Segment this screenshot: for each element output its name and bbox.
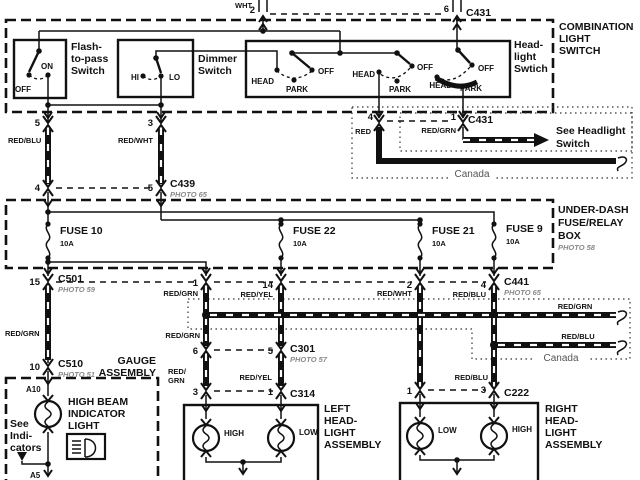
wire-color-label: RED/YEL xyxy=(240,290,273,299)
box-title: COMBINATION xyxy=(559,21,633,33)
connector-label: C510 xyxy=(58,358,83,370)
bulb-label: LOW xyxy=(299,428,318,437)
fuse-label: FUSE 9 xyxy=(506,223,543,235)
wire-continuation-icon xyxy=(617,157,626,171)
arrowhead-icon xyxy=(534,133,549,147)
contact-label: OFF xyxy=(417,63,433,72)
wire-color-label: RED/WHT xyxy=(377,289,412,298)
fuse-21-icon xyxy=(417,221,422,260)
wire-color-label: RED/GRN xyxy=(421,126,456,135)
pin-label: 6 xyxy=(193,346,198,357)
fuse-22-icon xyxy=(278,221,283,260)
pin-label: 5 xyxy=(268,346,274,357)
contact-label: HEAD xyxy=(251,77,274,86)
wire-color-label: RED/BLU xyxy=(453,290,486,299)
connector-label: C222 xyxy=(504,387,529,399)
bulb-label: LOW xyxy=(438,426,457,435)
pin-label: 3 xyxy=(481,385,486,396)
photo-ref: PHOTO 51 xyxy=(58,370,95,379)
photo-ref: PHOTO 65 xyxy=(504,288,542,297)
photo-ref: PHOTO 58 xyxy=(558,243,596,252)
pin-label: 2 xyxy=(250,5,255,16)
contact-label: LO xyxy=(169,73,180,82)
low-beam-bulb-icon xyxy=(268,419,294,457)
see-indicators-note: Indi- xyxy=(10,430,33,442)
contact-label: OFF xyxy=(318,67,334,76)
fuse-label: FUSE 22 xyxy=(293,225,336,237)
fuse-10-icon xyxy=(45,221,50,260)
switch-title: to-pass xyxy=(71,53,109,65)
pin-label: 1 xyxy=(193,278,199,289)
wire-color-label: RED/BLU xyxy=(455,373,488,382)
wire-color-label: RED/ xyxy=(168,367,187,376)
contact-label: PARK xyxy=(460,84,482,93)
bulb-label: HIGH xyxy=(512,425,532,434)
wire-color-label: RED/BLU xyxy=(561,332,594,341)
contact-label: PARK xyxy=(286,85,308,94)
contact-label: ON xyxy=(41,62,53,71)
pin-label: 1 xyxy=(268,387,274,398)
box-title: HEAD- xyxy=(545,415,579,427)
canada-label: Canada xyxy=(543,353,578,364)
box-title: SWITCH xyxy=(559,45,600,57)
photo-ref: PHOTO 57 xyxy=(290,355,328,364)
fuse-rating: 10A xyxy=(432,239,446,248)
lower-connectors xyxy=(201,342,499,399)
box-title: LIGHT xyxy=(545,427,577,439)
high-beam-bulb-icon xyxy=(193,419,219,457)
wire-color-label: RED/GRN xyxy=(558,302,593,311)
contact-label: HEAD xyxy=(429,81,452,90)
switch-title: Dimmer xyxy=(198,53,237,65)
pin-label: 5 xyxy=(35,118,41,129)
component-label: INDICATOR xyxy=(68,408,126,420)
pin-label: 3 xyxy=(148,118,153,129)
fuse-rating: 10A xyxy=(60,239,74,248)
high-beam-icon xyxy=(67,434,105,459)
component-label: LIGHT xyxy=(68,420,100,432)
pin-label: 4 xyxy=(368,112,374,123)
pin-label: 6 xyxy=(444,4,449,15)
box-title: ASSEMBLY xyxy=(324,439,381,451)
fuse-9-icon xyxy=(491,221,496,260)
pin-label: 1 xyxy=(451,112,457,123)
bulb-label: HIGH xyxy=(224,429,244,438)
box-title: LIGHT xyxy=(324,427,356,439)
pin-label: A10 xyxy=(26,385,41,394)
wire-color-label: RED xyxy=(355,127,371,136)
connector-label: C314 xyxy=(290,388,315,400)
pin-label: 10 xyxy=(29,362,40,373)
wire-color-label: RED/WHT xyxy=(118,136,153,145)
pin-label: 1 xyxy=(407,386,413,397)
see-indicators-note: See xyxy=(10,418,29,430)
fuse-label: FUSE 10 xyxy=(60,225,103,237)
switch-title: Swtich xyxy=(514,63,548,75)
fuse-rating: 10A xyxy=(506,237,520,246)
box-title: BOX xyxy=(558,230,581,242)
wire-color-label: RED/GRN xyxy=(5,329,40,338)
wire-color-label: GRN xyxy=(168,376,185,385)
box-title: FUSE/RELAY xyxy=(558,217,624,229)
contact-label: OFF xyxy=(15,85,31,94)
switch-title: Flash- xyxy=(71,41,102,53)
under-dash-wiring xyxy=(44,209,498,276)
wire-color-label: RED/GRN xyxy=(163,289,198,298)
pin-label: 4 xyxy=(35,183,41,194)
box-title: ASSEMBLY xyxy=(545,439,602,451)
switch-title: light xyxy=(514,51,537,63)
box-title: ASSEMBLY xyxy=(99,367,156,379)
contact-label: HEAD xyxy=(352,70,375,79)
box-title: LIGHT xyxy=(559,33,591,45)
canada-label: Canada xyxy=(454,169,489,180)
pin-label: A5 xyxy=(30,471,41,480)
box-title: RIGHT xyxy=(545,403,578,415)
box-title: HEAD- xyxy=(324,415,358,427)
box-title: GAUGE xyxy=(117,355,156,367)
dimmer-switch-box xyxy=(118,40,193,97)
wire-continuation-icon xyxy=(617,311,626,325)
connector-label: C431 xyxy=(466,7,491,19)
wire-color-label: RED/YEL xyxy=(239,373,272,382)
contact-label: PARK xyxy=(389,85,411,94)
box-title: UNDER-DASH xyxy=(558,204,629,216)
contact-label: HI xyxy=(131,73,139,82)
fuse-label: FUSE 21 xyxy=(432,225,475,237)
pin-label: 3 xyxy=(193,387,198,398)
low-beam-bulb-icon xyxy=(407,417,433,455)
connector-label: C301 xyxy=(290,343,315,355)
component-label: HIGH BEAM xyxy=(68,396,128,408)
left-headlight-assembly-box xyxy=(184,405,318,480)
connector-label: C439 xyxy=(170,178,195,190)
pin-label: 15 xyxy=(29,277,40,288)
photo-ref: PHOTO 59 xyxy=(58,285,96,294)
connector-label: C441 xyxy=(504,276,529,288)
switch-title: Switch xyxy=(71,65,105,77)
switch-title: Switch xyxy=(198,65,232,77)
arrow-icon xyxy=(259,24,461,30)
wiring-diagram: WHT 2 6 C431 COMBINATION LIGHT SWITCH Fl… xyxy=(0,0,640,480)
pin-label: 5 xyxy=(148,183,154,194)
box-title: LEFT xyxy=(324,403,351,415)
fuse-rating: 10A xyxy=(293,239,307,248)
photo-ref: PHOTO 65 xyxy=(170,190,208,199)
connector-label: C501 xyxy=(58,273,83,285)
switch-title: Head- xyxy=(514,39,544,51)
wire-color-label: RED/GRN xyxy=(165,331,200,340)
indicator-bulb-icon xyxy=(35,395,61,433)
see-headlight-switch-note: See Headlight xyxy=(556,125,626,137)
see-headlight-switch-note: Switch xyxy=(556,138,590,150)
connector-label: C431 xyxy=(468,114,493,126)
see-indicators-note: cators xyxy=(10,442,42,454)
right-headlight-wiring xyxy=(407,394,507,474)
wire-color-label: RED/BLU xyxy=(8,136,41,145)
c431-top-connector xyxy=(259,0,461,50)
contact-label: OFF xyxy=(478,64,494,73)
high-beam-bulb-icon xyxy=(481,417,507,455)
wire-continuation-icon xyxy=(617,341,626,355)
